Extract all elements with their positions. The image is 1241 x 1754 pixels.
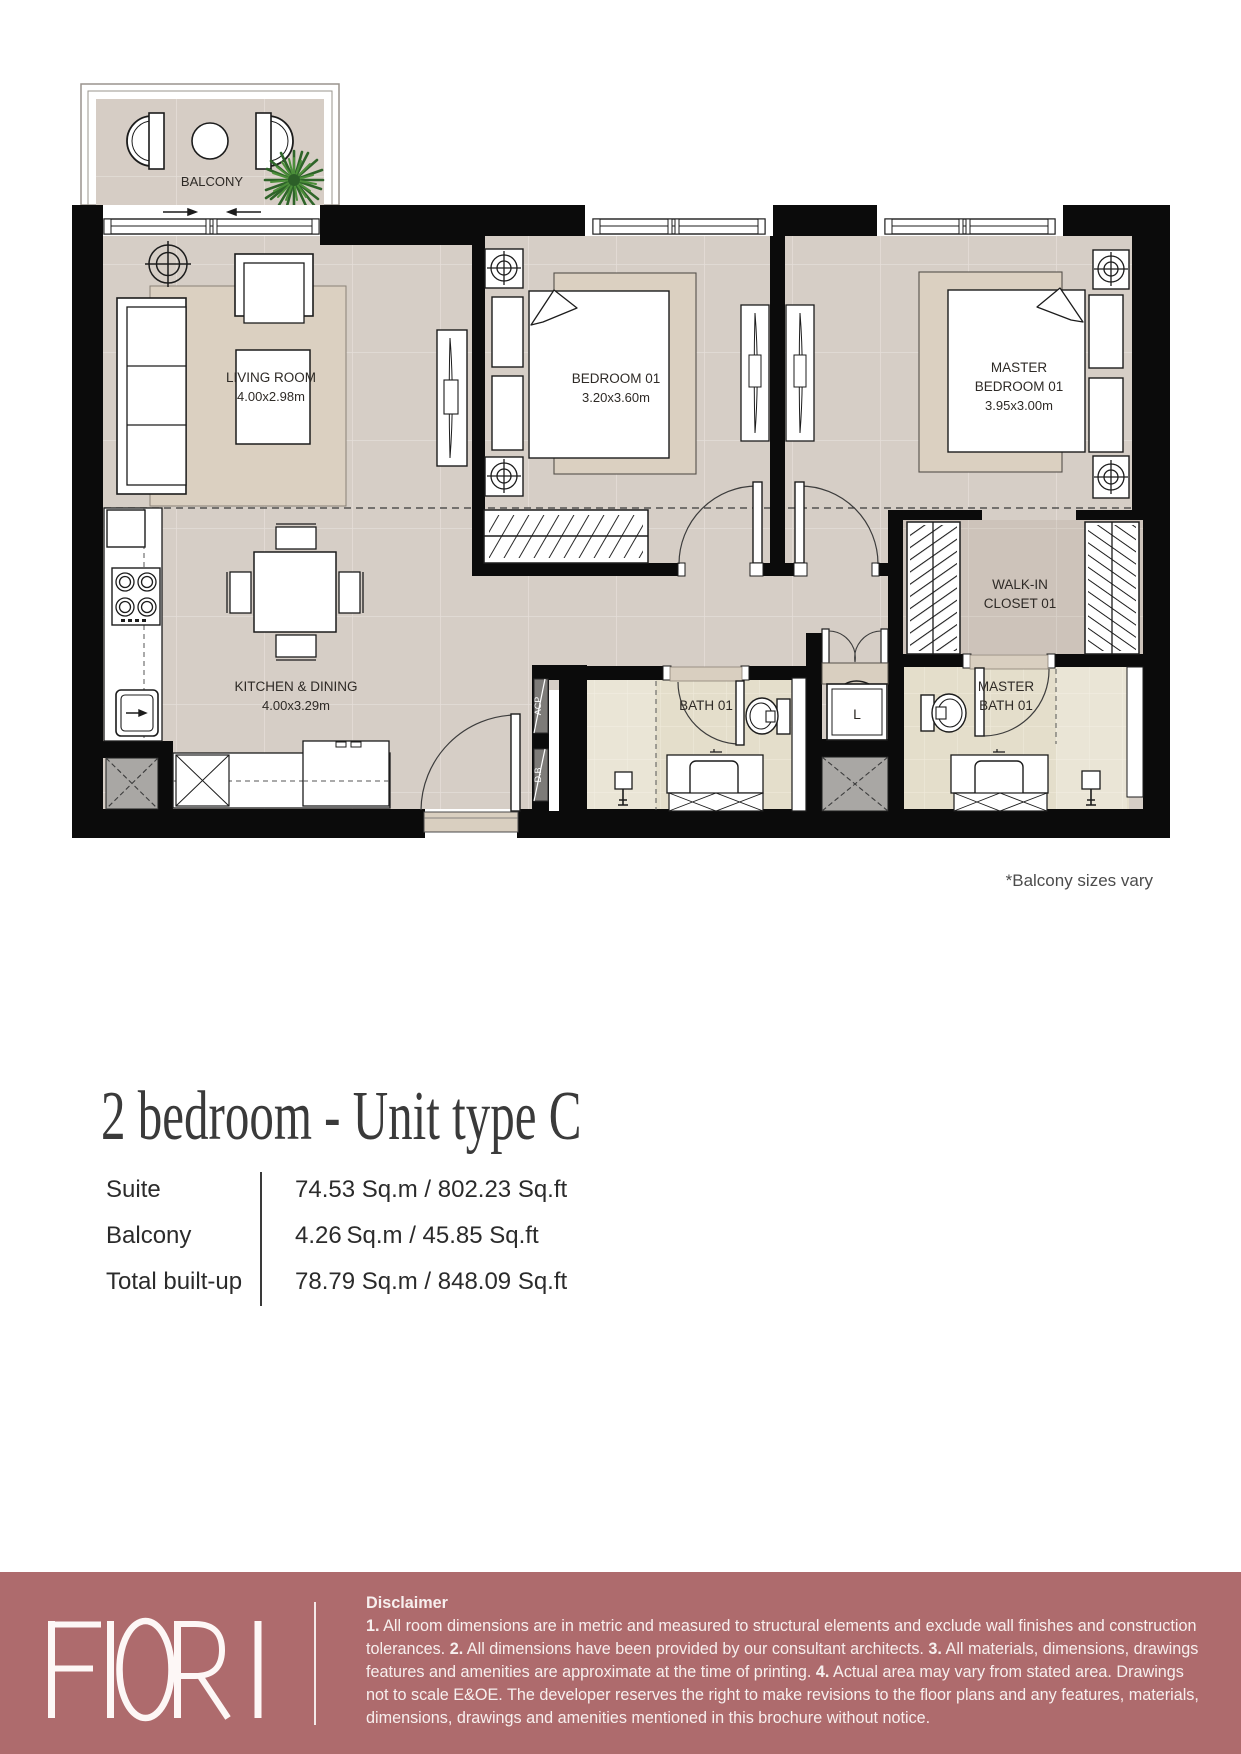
svg-text:ACP: ACP	[533, 697, 543, 716]
svg-text:*Balcony sizes vary: *Balcony sizes vary	[1006, 871, 1154, 890]
svg-text:KITCHEN & DINING: KITCHEN & DINING	[234, 679, 357, 694]
svg-text:LIVING ROOM: LIVING ROOM	[226, 370, 316, 385]
svg-text:BATH 01: BATH 01	[679, 698, 733, 713]
svg-text:D.B: D.B	[533, 767, 543, 782]
svg-text:3.95x3.00m: 3.95x3.00m	[985, 398, 1053, 413]
svg-text:BALCONY: BALCONY	[181, 174, 243, 189]
svg-text:L: L	[853, 706, 861, 722]
svg-text:CLOSET 01: CLOSET 01	[984, 596, 1057, 611]
svg-text:BEDROOM 01: BEDROOM 01	[572, 371, 661, 386]
svg-text:BATH 01: BATH 01	[979, 698, 1033, 713]
svg-text:MASTER: MASTER	[991, 360, 1048, 375]
svg-text:4.00x3.29m: 4.00x3.29m	[262, 698, 330, 713]
svg-text:WALK-IN: WALK-IN	[992, 577, 1048, 592]
svg-text:3.20x3.60m: 3.20x3.60m	[582, 390, 650, 405]
svg-text:BEDROOM 01: BEDROOM 01	[975, 379, 1064, 394]
svg-text:MASTER: MASTER	[978, 679, 1035, 694]
svg-text:4.00x2.98m: 4.00x2.98m	[237, 389, 305, 404]
